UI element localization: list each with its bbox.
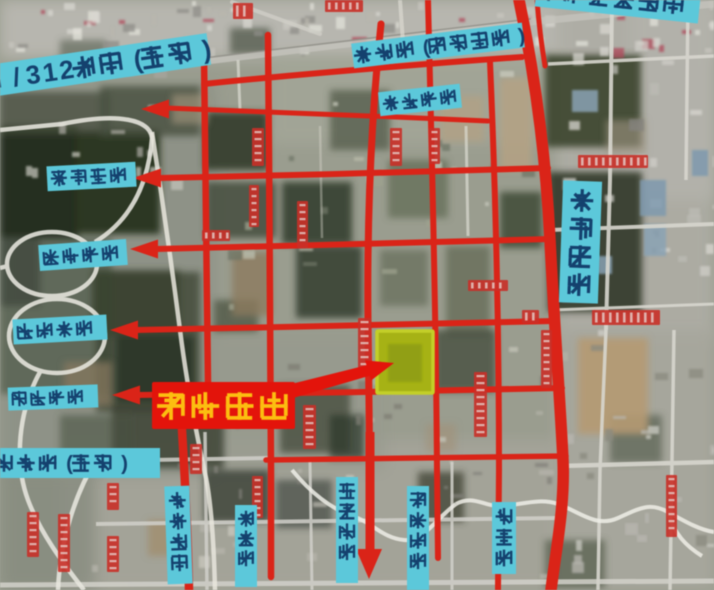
svg-text:): ) bbox=[121, 452, 128, 475]
